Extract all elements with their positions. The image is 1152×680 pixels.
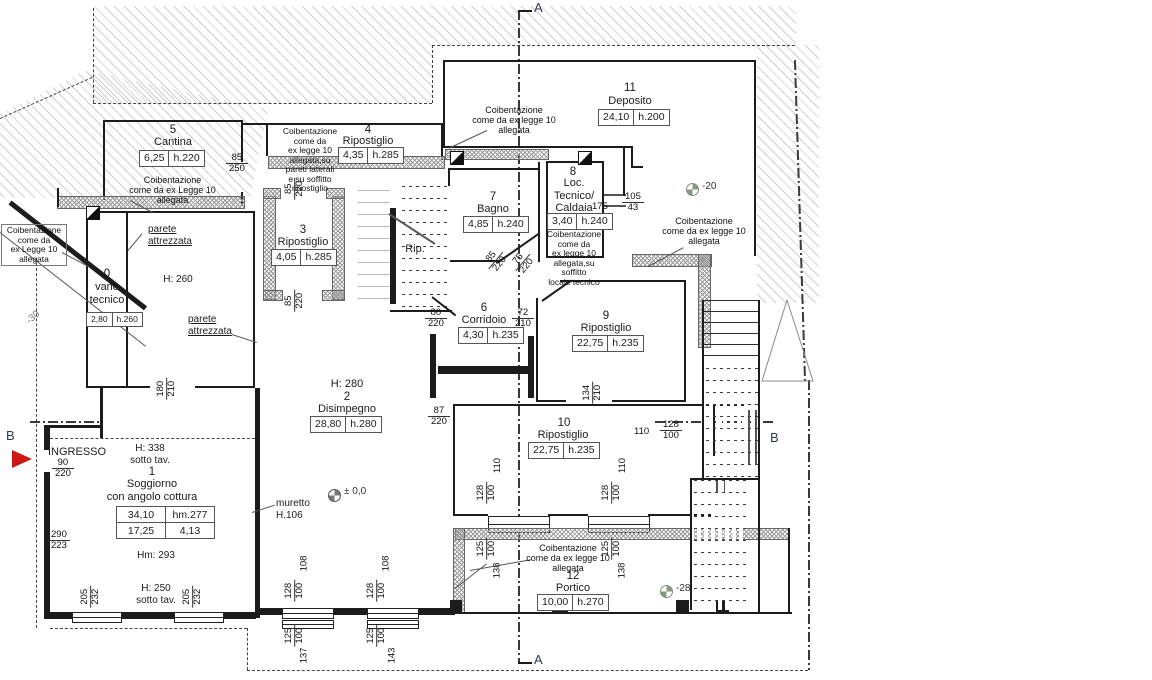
dim-corridoio-door2: 72210: [512, 308, 534, 330]
pilaster-marker-icon: [450, 151, 464, 165]
floor-plan: A A B B: [0, 0, 1152, 680]
dim-portico-win2: 125100: [601, 538, 623, 560]
dim-portico-win2-x: 138: [616, 563, 627, 579]
room-h260-label: H: 260: [150, 274, 206, 286]
dim-corridoio-door1: 80220: [425, 308, 447, 330]
slope-triangle: [760, 298, 816, 384]
insulation-note-right: Coibentazione come da ex legge 10 allega…: [656, 216, 752, 246]
parete-attrezzata-label-1: parete attrezzata: [148, 224, 212, 247]
insulation-note-deposito: Coibentazione come da ex legge 10 allega…: [458, 105, 570, 135]
section-label-a-bottom: A: [534, 652, 543, 667]
dim-portico-win1-x: 138: [491, 563, 502, 579]
room-areabox-rip4: 4,35h.285: [338, 147, 404, 164]
muretto-label: muretto H.106: [276, 498, 330, 521]
room-number-vano: 0: [94, 268, 120, 281]
room-areabox-bagno: 4,85h.240: [463, 216, 529, 233]
level-zero-label: ± 0,0: [344, 486, 366, 497]
room-areabox-rip3: 4,05h.285: [271, 249, 337, 266]
room-areabox-portico: 10,00h.270: [537, 594, 609, 611]
room-areabox-deposito: 24,10h.200: [598, 109, 670, 126]
room-name-deposito: Deposito: [595, 95, 665, 108]
soggiorno-h338: H: 338 sotto tav.: [118, 443, 182, 466]
dim-soggiorno-left: 290223: [48, 530, 70, 552]
room-areabox-rip9: 22,75h.235: [572, 335, 644, 352]
room-name-rip10: Ripostiglio: [528, 429, 598, 442]
dim-rip10-right-width: 110: [634, 426, 649, 437]
dim-rip10-win2: 128100: [601, 482, 623, 504]
room-areabox-cantina: 6,25h.220: [139, 150, 205, 167]
soggiorno-area-table: 34,10hm.277 17,254,13: [116, 506, 215, 539]
dim-rip10-win1-width: 110: [492, 458, 503, 473]
caldaia-width-dim: 175: [592, 201, 608, 212]
dim-portico-win1: 125100: [476, 538, 498, 560]
section-label-b-left: B: [6, 428, 15, 443]
pilaster-marker-icon: [578, 151, 592, 165]
dim-dis-win2-width: 108: [380, 556, 391, 572]
level-minus20-label: -20: [702, 181, 716, 192]
room-name-rip4: Ripostiglio: [333, 135, 403, 148]
stair-rip-label: Rip.: [398, 243, 432, 256]
dim-rip3-top: 85220: [284, 178, 306, 200]
dim-dis-win2-sill: 125100: [366, 625, 388, 647]
dim-rip10-win2-width: 110: [617, 458, 628, 473]
room-name-portico: Portico: [538, 582, 608, 595]
pilaster-marker-icon: [86, 206, 100, 220]
room-name-bagno: Bagno: [458, 203, 528, 216]
dim-dis-win1: 128100: [284, 580, 306, 602]
dim-vano-door: 180210: [156, 378, 178, 400]
dim-rip3-bottom: 85220: [284, 290, 306, 312]
room-areabox-vano: 2,80h.260: [86, 312, 143, 327]
room-areabox-rip10: 22,75h.235: [528, 442, 600, 459]
room-name-rip9: Ripostiglio: [571, 322, 641, 335]
room-name-disimpegno: Disimpegno: [307, 403, 387, 416]
level-compass-icon-minus20: [686, 183, 699, 196]
entrance-arrow-icon: [12, 450, 32, 468]
dim-rip10-win1: 128100: [476, 482, 498, 504]
dim-caldaia-window: 10543: [622, 192, 644, 214]
dim-soggiorno-win2: 205232: [182, 586, 204, 608]
insulation-note-caldaia: Coibentazione come da ex legge 10 allega…: [543, 230, 605, 287]
section-label-b-right: B: [770, 430, 779, 445]
level-compass-icon-minus28: [660, 585, 673, 598]
insulation-note-cantina: Coibentazione come da ex Legge 10 allega…: [110, 175, 235, 205]
dim-disimpegno-door: 87220: [428, 406, 450, 428]
room-areabox-disimpegno: 28,80h.280: [310, 416, 382, 433]
dim-dis-win2: 128100: [366, 580, 388, 602]
room-name-cantina: Cantina: [128, 136, 218, 149]
room-areabox-loctec: 3,40h.240: [547, 213, 613, 230]
dim-bagno-door: 85220: [481, 245, 512, 276]
dim-soggiorno-win1: 205232: [80, 586, 102, 608]
ceiling-height-disimpegno: H: 280: [320, 378, 374, 391]
parete-attrezzata-label-2: parete attrezzata: [188, 314, 252, 337]
dim-dis-win1-bottom: 137: [298, 648, 309, 664]
dim-dis-win1-width: 108: [298, 556, 309, 572]
room-name-soggiorno: Soggiorno con angolo cottura: [92, 478, 212, 503]
room-name-vano: vano tecnico: [84, 281, 130, 306]
soggiorno-h250: H: 250 sotto tav.: [126, 583, 186, 606]
level-compass-icon-zero: [328, 489, 341, 502]
dim-rip9-door: 134210: [582, 382, 604, 404]
room-name-corridoio: Corridoio: [449, 314, 519, 327]
room-number-deposito: 11: [617, 82, 643, 95]
dim-ingresso-door: 90220: [52, 458, 74, 480]
soggiorno-hm293: Hm: 293: [128, 550, 184, 562]
dim-rip10-right: 128100: [660, 420, 682, 442]
insulation-note-left: Coibentazione come da ex Legge 10 allega…: [1, 224, 67, 266]
level-minus30-label: -30: [24, 309, 42, 327]
dim-dis-win2-bottom: 143: [386, 648, 397, 664]
room-name-rip3: Ripostiglio: [268, 236, 338, 249]
dim-cantina-door: 85250: [226, 153, 248, 175]
level-minus28-label: -28: [676, 583, 690, 594]
section-label-a-top: A: [534, 0, 543, 15]
dim-dis-win1-sill: 125100: [284, 625, 306, 647]
